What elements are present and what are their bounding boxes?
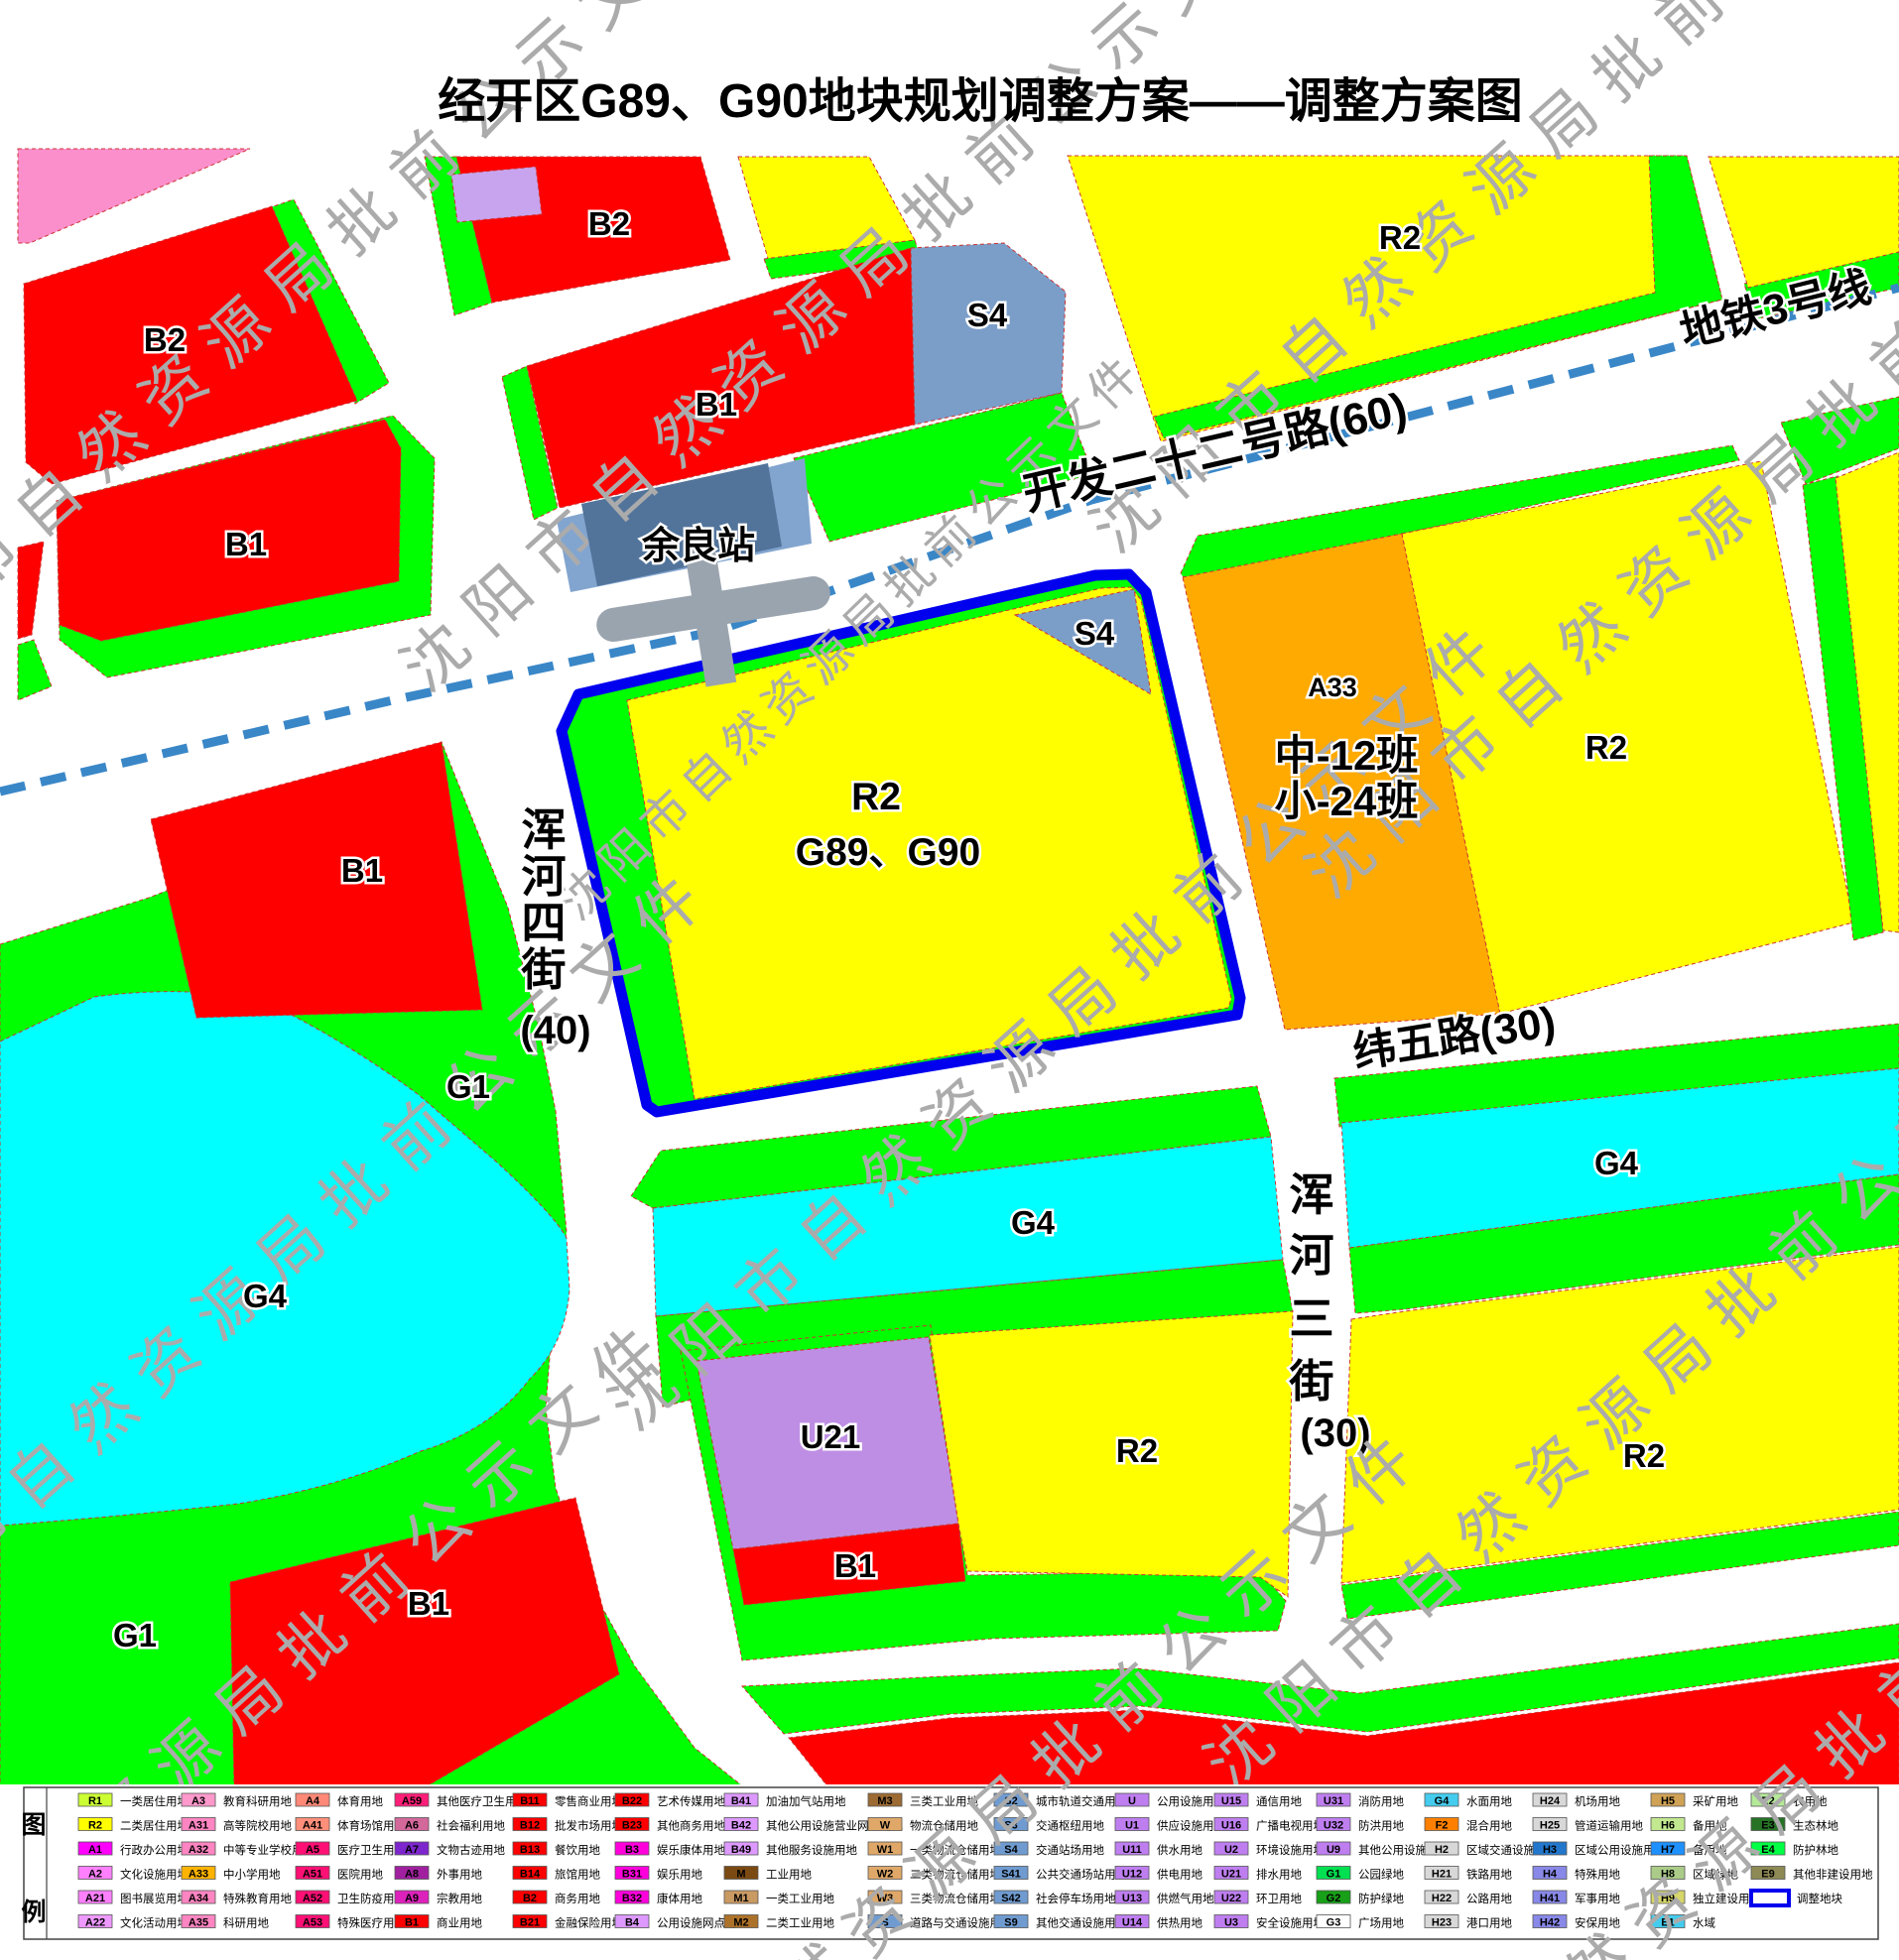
svg-text:娱乐康体用地: 娱乐康体用地 bbox=[657, 1843, 725, 1857]
svg-text:(40): (40) bbox=[520, 1009, 590, 1052]
svg-text:F2: F2 bbox=[1436, 1820, 1449, 1832]
svg-text:港口用地: 港口用地 bbox=[1466, 1917, 1512, 1930]
svg-text:水面用地: 水面用地 bbox=[1466, 1795, 1512, 1808]
svg-text:M1: M1 bbox=[733, 1893, 748, 1904]
svg-text:B13: B13 bbox=[520, 1844, 540, 1856]
svg-text:R2: R2 bbox=[851, 776, 901, 818]
svg-text:B1: B1 bbox=[405, 1917, 419, 1929]
svg-text:U12: U12 bbox=[1122, 1869, 1142, 1881]
svg-text:A5: A5 bbox=[306, 1844, 319, 1856]
svg-text:H41: H41 bbox=[1540, 1893, 1560, 1904]
svg-text:B1: B1 bbox=[408, 1585, 449, 1622]
svg-text:社会停车场用地: 社会停车场用地 bbox=[1036, 1892, 1116, 1905]
svg-text:A7: A7 bbox=[405, 1844, 419, 1856]
svg-text:B22: B22 bbox=[622, 1795, 642, 1807]
svg-text:社会福利用地: 社会福利用地 bbox=[437, 1819, 505, 1833]
svg-text:交通枢纽用地: 交通枢纽用地 bbox=[1036, 1819, 1104, 1833]
svg-text:餐饮用地: 餐饮用地 bbox=[555, 1843, 600, 1857]
svg-text:安全设施用地: 安全设施用地 bbox=[1256, 1916, 1325, 1930]
svg-text:供电用地: 供电用地 bbox=[1157, 1868, 1203, 1882]
svg-text:B31: B31 bbox=[622, 1869, 642, 1881]
svg-text:A33: A33 bbox=[189, 1869, 208, 1881]
svg-text:中小学用地: 中小学用地 bbox=[223, 1868, 281, 1882]
svg-text:H2: H2 bbox=[1435, 1844, 1449, 1856]
svg-text:B12: B12 bbox=[520, 1820, 540, 1832]
svg-text:B1: B1 bbox=[341, 852, 383, 889]
svg-text:A52: A52 bbox=[303, 1893, 322, 1904]
svg-text:特殊用地: 特殊用地 bbox=[1575, 1868, 1620, 1882]
svg-text:H25: H25 bbox=[1540, 1820, 1560, 1832]
svg-text:A41: A41 bbox=[303, 1820, 322, 1832]
svg-text:B2: B2 bbox=[588, 205, 630, 242]
svg-text:A4: A4 bbox=[306, 1795, 320, 1807]
svg-text:R2: R2 bbox=[1623, 1437, 1665, 1474]
svg-text:W: W bbox=[880, 1820, 891, 1832]
svg-text:机场用地: 机场用地 bbox=[1575, 1794, 1620, 1808]
svg-text:二类居住用地: 二类居住用地 bbox=[120, 1819, 189, 1833]
svg-text:康体用地: 康体用地 bbox=[657, 1892, 702, 1905]
svg-text:G4: G4 bbox=[1435, 1795, 1451, 1807]
svg-text:混合用地: 混合用地 bbox=[1466, 1819, 1512, 1833]
svg-text:A1: A1 bbox=[88, 1844, 102, 1856]
svg-text:B49: B49 bbox=[731, 1844, 751, 1856]
svg-text:B23: B23 bbox=[622, 1820, 642, 1832]
svg-text:旅馆用地: 旅馆用地 bbox=[555, 1868, 600, 1882]
svg-text:B21: B21 bbox=[520, 1917, 540, 1929]
svg-text:一类工业用地: 一类工业用地 bbox=[766, 1892, 834, 1905]
svg-text:加油加气站用地: 加油加气站用地 bbox=[766, 1794, 846, 1808]
svg-text:U3: U3 bbox=[1224, 1917, 1238, 1929]
svg-text:W1: W1 bbox=[877, 1844, 894, 1856]
svg-text:B11: B11 bbox=[520, 1795, 540, 1807]
svg-text:A9: A9 bbox=[405, 1893, 419, 1904]
svg-text:H6: H6 bbox=[1661, 1820, 1675, 1832]
svg-text:河: 河 bbox=[1289, 1230, 1333, 1281]
svg-text:A59: A59 bbox=[402, 1795, 422, 1807]
svg-text:批发市场用地: 批发市场用地 bbox=[555, 1819, 623, 1833]
svg-text:管道运输用地: 管道运输用地 bbox=[1575, 1819, 1643, 1833]
svg-text:体育用地: 体育用地 bbox=[337, 1794, 383, 1808]
svg-text:G3: G3 bbox=[1327, 1917, 1341, 1929]
svg-text:其他商务用地: 其他商务用地 bbox=[657, 1819, 725, 1833]
svg-text:广场用地: 广场用地 bbox=[1358, 1916, 1404, 1930]
svg-text:H23: H23 bbox=[1432, 1917, 1452, 1929]
svg-text:图: 图 bbox=[21, 1811, 46, 1839]
svg-text:S4: S4 bbox=[1075, 615, 1115, 652]
svg-text:H42: H42 bbox=[1540, 1917, 1560, 1929]
svg-text:G2: G2 bbox=[1327, 1893, 1341, 1904]
svg-text:其他非建设用地: 其他非建设用地 bbox=[1793, 1868, 1873, 1882]
svg-text:防护林地: 防护林地 bbox=[1793, 1843, 1838, 1857]
svg-text:U16: U16 bbox=[1221, 1820, 1241, 1832]
svg-text:A21: A21 bbox=[85, 1893, 105, 1904]
svg-text:医院用地: 医院用地 bbox=[337, 1868, 383, 1882]
svg-text:G1: G1 bbox=[113, 1617, 157, 1654]
svg-text:U22: U22 bbox=[1221, 1893, 1241, 1904]
svg-text:防护绿地: 防护绿地 bbox=[1358, 1892, 1404, 1905]
svg-text:调整地块: 调整地块 bbox=[1797, 1892, 1842, 1905]
svg-text:A6: A6 bbox=[405, 1820, 419, 1832]
svg-text:B1: B1 bbox=[834, 1547, 876, 1584]
svg-text:B4: B4 bbox=[625, 1917, 640, 1929]
svg-text:金融保险用地: 金融保险用地 bbox=[555, 1916, 623, 1930]
svg-text:军事用地: 军事用地 bbox=[1575, 1893, 1620, 1905]
svg-text:B2: B2 bbox=[523, 1893, 537, 1904]
svg-text:环境设施用地: 环境设施用地 bbox=[1256, 1843, 1325, 1857]
svg-text:B1: B1 bbox=[225, 526, 267, 562]
svg-text:A51: A51 bbox=[303, 1869, 322, 1881]
svg-text:U31: U31 bbox=[1324, 1795, 1343, 1807]
svg-text:S4: S4 bbox=[967, 297, 1008, 333]
svg-text:S41: S41 bbox=[1001, 1869, 1021, 1881]
svg-text:U2: U2 bbox=[1224, 1844, 1238, 1856]
svg-text:A35: A35 bbox=[189, 1917, 208, 1929]
svg-text:H3: H3 bbox=[1543, 1844, 1557, 1856]
svg-text:G1: G1 bbox=[446, 1068, 490, 1105]
svg-text:U11: U11 bbox=[1122, 1844, 1142, 1856]
svg-text:娱乐用地: 娱乐用地 bbox=[657, 1868, 702, 1882]
svg-text:文化设施用地: 文化设施用地 bbox=[120, 1868, 189, 1882]
svg-text:H24: H24 bbox=[1540, 1795, 1561, 1807]
svg-text:街: 街 bbox=[520, 944, 566, 995]
svg-text:G4: G4 bbox=[1011, 1204, 1056, 1241]
svg-text:供燃气用地: 供燃气用地 bbox=[1157, 1892, 1214, 1905]
svg-text:B14: B14 bbox=[520, 1869, 541, 1881]
svg-text:环卫用地: 环卫用地 bbox=[1256, 1893, 1302, 1905]
svg-text:S42: S42 bbox=[1001, 1893, 1021, 1904]
svg-text:G1: G1 bbox=[1327, 1869, 1341, 1881]
svg-text:H22: H22 bbox=[1432, 1893, 1452, 1904]
svg-text:零售商业用地: 零售商业用地 bbox=[555, 1794, 623, 1808]
svg-text:其他交通设施用地: 其他交通设施用地 bbox=[1036, 1916, 1127, 1930]
svg-text:供热用地: 供热用地 bbox=[1157, 1916, 1203, 1930]
svg-text:公路用地: 公路用地 bbox=[1466, 1892, 1512, 1905]
svg-text:M3: M3 bbox=[877, 1795, 892, 1807]
svg-text:R2: R2 bbox=[88, 1820, 102, 1832]
svg-text:文化活动用地: 文化活动用地 bbox=[120, 1916, 189, 1930]
svg-text:商务用地: 商务用地 bbox=[555, 1892, 600, 1905]
svg-text:R2: R2 bbox=[1379, 219, 1421, 256]
svg-text:M2: M2 bbox=[733, 1917, 748, 1929]
svg-text:U32: U32 bbox=[1324, 1820, 1343, 1832]
svg-text:R2: R2 bbox=[1116, 1432, 1158, 1469]
svg-text:四: 四 bbox=[521, 898, 566, 948]
svg-text:B41: B41 bbox=[731, 1795, 751, 1807]
svg-text:工业用地: 工业用地 bbox=[766, 1869, 812, 1882]
svg-text:A3: A3 bbox=[191, 1795, 205, 1807]
svg-text:U21: U21 bbox=[1221, 1869, 1241, 1881]
svg-text:B32: B32 bbox=[622, 1893, 642, 1904]
svg-text:A34: A34 bbox=[189, 1893, 209, 1904]
svg-text:教育科研用地: 教育科研用地 bbox=[223, 1794, 292, 1808]
svg-text:R2: R2 bbox=[1585, 729, 1627, 766]
svg-text:行政办公用地: 行政办公用地 bbox=[120, 1843, 189, 1857]
svg-text:U: U bbox=[1128, 1795, 1136, 1807]
svg-text:A31: A31 bbox=[189, 1820, 208, 1832]
svg-text:A33: A33 bbox=[1308, 673, 1357, 702]
svg-text:广播电视用地: 广播电视用地 bbox=[1256, 1819, 1325, 1833]
svg-text:A53: A53 bbox=[303, 1917, 322, 1929]
svg-text:交通站场用地: 交通站场用地 bbox=[1036, 1843, 1104, 1857]
svg-text:高等院校用地: 高等院校用地 bbox=[223, 1819, 292, 1833]
svg-text:排水用地: 排水用地 bbox=[1256, 1868, 1302, 1882]
svg-text:通信用地: 通信用地 bbox=[1256, 1795, 1302, 1808]
svg-text:公园绿地: 公园绿地 bbox=[1358, 1868, 1404, 1882]
svg-text:U15: U15 bbox=[1221, 1795, 1241, 1807]
svg-text:其他服务设施用地: 其他服务设施用地 bbox=[766, 1843, 857, 1857]
svg-text:浑: 浑 bbox=[521, 804, 566, 855]
svg-text:经开区G89、G90地块规划调整方案——调整方案图: 经开区G89、G90地块规划调整方案——调整方案图 bbox=[438, 75, 1522, 128]
svg-text:公共交通场站用地: 公共交通场站用地 bbox=[1036, 1868, 1127, 1882]
svg-text:A2: A2 bbox=[88, 1869, 102, 1881]
svg-text:H21: H21 bbox=[1432, 1869, 1452, 1881]
svg-text:浑: 浑 bbox=[1289, 1169, 1333, 1220]
svg-text:文物古迹用地: 文物古迹用地 bbox=[437, 1843, 505, 1857]
svg-text:科研用地: 科研用地 bbox=[223, 1916, 269, 1930]
svg-text:U1: U1 bbox=[1125, 1820, 1139, 1832]
svg-text:H4: H4 bbox=[1543, 1869, 1558, 1881]
svg-text:铁路用地: 铁路用地 bbox=[1466, 1868, 1512, 1882]
svg-text:G89、G90: G89、G90 bbox=[796, 831, 980, 874]
svg-text:街: 街 bbox=[1288, 1356, 1333, 1407]
svg-text:余良站: 余良站 bbox=[641, 525, 755, 567]
svg-text:一类居住用地: 一类居住用地 bbox=[120, 1794, 189, 1808]
svg-text:特殊教育用地: 特殊教育用地 bbox=[223, 1892, 292, 1905]
svg-text:小-24班: 小-24班 bbox=[1275, 778, 1419, 824]
svg-text:B2: B2 bbox=[144, 321, 186, 358]
svg-text:商业用地: 商业用地 bbox=[437, 1916, 482, 1930]
svg-text:艺术传媒用地: 艺术传媒用地 bbox=[657, 1794, 725, 1808]
svg-text:宗教用地: 宗教用地 bbox=[437, 1892, 482, 1905]
svg-text:A32: A32 bbox=[189, 1844, 208, 1856]
svg-text:U14: U14 bbox=[1122, 1917, 1143, 1929]
svg-text:B42: B42 bbox=[731, 1820, 751, 1832]
svg-text:A22: A22 bbox=[85, 1917, 105, 1929]
svg-text:例: 例 bbox=[21, 1899, 46, 1926]
svg-text:M: M bbox=[736, 1869, 745, 1881]
svg-text:A8: A8 bbox=[405, 1869, 419, 1881]
svg-text:图书展览用地: 图书展览用地 bbox=[120, 1892, 189, 1905]
svg-text:中-12班: 中-12班 bbox=[1275, 732, 1419, 779]
svg-text:E9: E9 bbox=[1761, 1869, 1774, 1881]
svg-text:消防用地: 消防用地 bbox=[1358, 1794, 1404, 1808]
svg-text:三: 三 bbox=[1289, 1293, 1333, 1344]
svg-text:H5: H5 bbox=[1661, 1795, 1675, 1807]
svg-text:G4: G4 bbox=[1594, 1145, 1639, 1181]
svg-text:U13: U13 bbox=[1122, 1893, 1142, 1904]
svg-text:U9: U9 bbox=[1327, 1844, 1340, 1856]
svg-text:B1: B1 bbox=[696, 386, 737, 423]
svg-text:外事用地: 外事用地 bbox=[437, 1869, 482, 1882]
svg-text:R1: R1 bbox=[88, 1795, 102, 1807]
svg-text:供水用地: 供水用地 bbox=[1157, 1843, 1203, 1857]
svg-text:U21: U21 bbox=[801, 1418, 861, 1455]
svg-text:B3: B3 bbox=[625, 1844, 639, 1856]
svg-text:防洪用地: 防洪用地 bbox=[1358, 1819, 1404, 1833]
svg-text:河: 河 bbox=[521, 851, 566, 902]
svg-text:G4: G4 bbox=[243, 1278, 288, 1314]
svg-text:S9: S9 bbox=[1004, 1917, 1017, 1929]
